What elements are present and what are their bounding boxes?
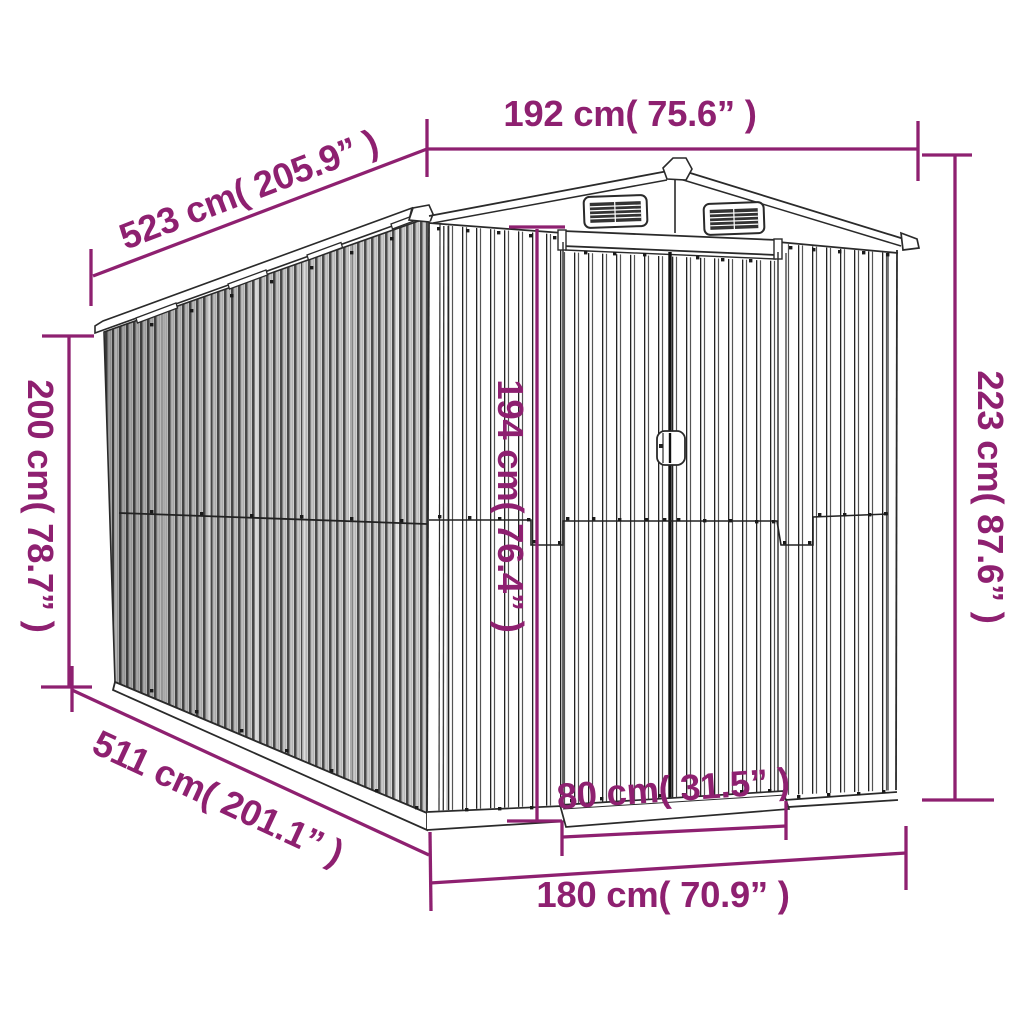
svg-text:194 cm( 76.4” ): 194 cm( 76.4” ) — [490, 379, 531, 632]
svg-text:223 cm( 87.6” ): 223 cm( 87.6” ) — [970, 370, 1011, 623]
svg-text:192 cm( 75.6” ): 192 cm( 75.6” ) — [503, 93, 756, 134]
svg-text:180 cm( 70.9” ): 180 cm( 70.9” ) — [536, 874, 789, 915]
svg-text:200 cm( 78.7” ): 200 cm( 78.7” ) — [20, 379, 61, 632]
